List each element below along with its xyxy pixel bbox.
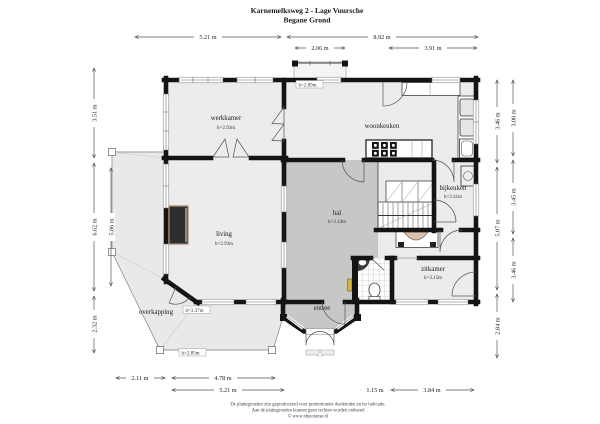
room-woonkeuken-label: woonkeuken bbox=[365, 123, 400, 130]
kitchen-island bbox=[366, 140, 432, 158]
dim-right-inner-c: 2.84 m bbox=[495, 317, 502, 334]
dim-right-inner-a: 3.46 m bbox=[495, 112, 502, 129]
room-zitkamer-height: h=3.15m bbox=[424, 276, 442, 281]
entree-step bbox=[306, 350, 334, 356]
dim-left-inner: 5.06 m bbox=[109, 218, 116, 235]
room-hal-height: h=3.14m bbox=[328, 220, 346, 225]
appliance bbox=[460, 99, 474, 116]
dim-right-outer-c: 3.46 m bbox=[511, 261, 518, 278]
dim-top-a: 5.21 m bbox=[199, 34, 216, 41]
dim-right-outer-b: 3.45 m bbox=[511, 188, 518, 205]
dim-bottom-c: 5.21 m bbox=[219, 387, 236, 394]
hall-floor bbox=[283, 160, 378, 332]
room-zitkamer-label: zitkamer bbox=[421, 266, 446, 273]
dim-bottom-b: 4.78 m bbox=[214, 375, 231, 382]
page-subtitle: Begane Grond bbox=[284, 16, 332, 25]
footer-line3: © www.objectense.nl bbox=[288, 414, 329, 420]
stairs bbox=[378, 202, 434, 230]
toilet bbox=[369, 283, 380, 297]
dim-top-d: 3.91 m bbox=[424, 45, 441, 52]
overkapping-height-edge: h=2.85m bbox=[182, 351, 200, 356]
dim-bottom-d: 1.15 m bbox=[366, 387, 383, 394]
room-living-label: living bbox=[216, 231, 232, 238]
radiator bbox=[348, 279, 353, 291]
veranda-post bbox=[109, 249, 116, 256]
room-living-height: h=2.93m bbox=[215, 242, 233, 247]
room-bijkeuken-height: h=2.41m bbox=[444, 195, 462, 200]
dim-top-c: 2.06 m bbox=[311, 45, 328, 52]
room-bijkeuken-label: bijkeuken bbox=[440, 185, 467, 192]
dim-right-inner-b: 5.07 m bbox=[495, 219, 502, 236]
room-werkkamer-height: h=2.93m bbox=[217, 126, 235, 131]
floor-plan-page: Karnemelksweg 2 - Lage Vuursche Begane G… bbox=[0, 0, 600, 424]
veranda-post bbox=[157, 347, 164, 354]
toilet-room bbox=[357, 258, 392, 302]
washing-machine bbox=[461, 166, 475, 186]
room-entree-label: entree bbox=[314, 305, 331, 312]
veranda-post bbox=[269, 347, 276, 354]
page-title: Karnemelksweg 2 - Lage Vuursche bbox=[251, 6, 364, 15]
dim-bottom-e: 3.84 m bbox=[423, 387, 440, 394]
dim-right-outer-a: 3.00 m bbox=[511, 109, 518, 126]
footer-line1: De plattegronden zijn geproduceerd voor … bbox=[230, 403, 385, 408]
dim-left-c: 2.32 m bbox=[92, 315, 99, 332]
room-hal-label: hal bbox=[333, 210, 341, 217]
dim-bottom-a: 2.11 m bbox=[132, 375, 149, 382]
veranda-post bbox=[109, 149, 116, 156]
porch-height: h=2.89m bbox=[299, 83, 317, 88]
dim-left-b: 6.62 m bbox=[92, 218, 99, 235]
dim-top-b: 8.92 m bbox=[373, 34, 390, 41]
floor-plan-svg: Karnemelksweg 2 - Lage Vuursche Begane G… bbox=[0, 0, 600, 424]
room-overkapping-label: overkapping bbox=[139, 309, 174, 316]
footer-line2: Aan de plattegronden kunnen geen rechten… bbox=[252, 409, 366, 414]
closets bbox=[386, 181, 434, 202]
fireplace bbox=[169, 206, 188, 244]
vanity-sink bbox=[396, 232, 438, 248]
overkapping-height-wall: h=3.37m bbox=[186, 309, 204, 314]
footer: De plattegronden zijn geproduceerd voor … bbox=[230, 403, 385, 420]
appliance bbox=[460, 119, 474, 136]
dim-left-a: 3.51 m bbox=[92, 104, 99, 121]
room-werkkamer-label: werkkamer bbox=[211, 115, 242, 122]
